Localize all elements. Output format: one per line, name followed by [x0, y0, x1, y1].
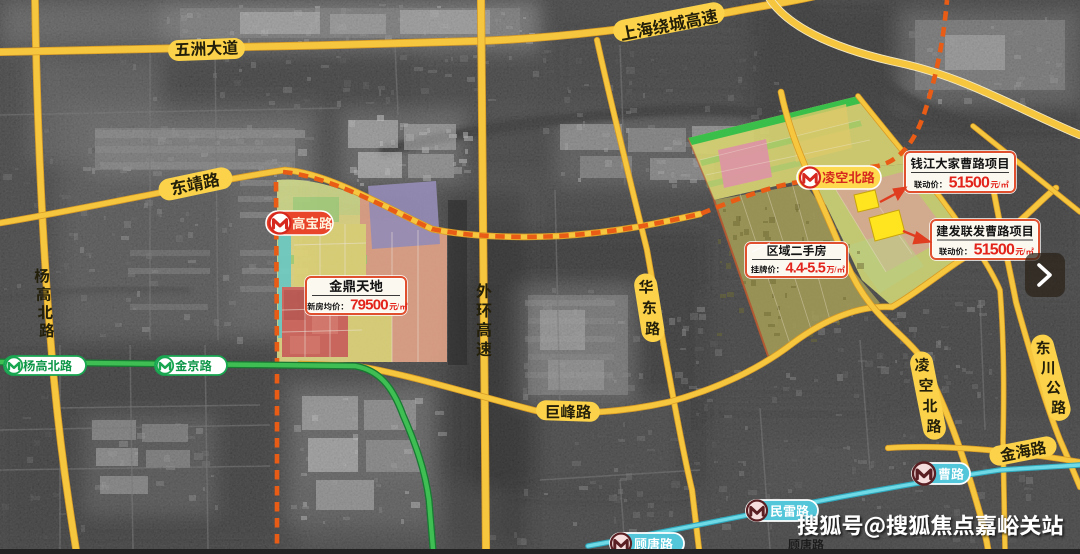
svg-text:51500: 51500	[949, 175, 990, 192]
svg-text:79500: 79500	[350, 297, 388, 314]
svg-text:4.4-5.5: 4.4-5.5	[786, 261, 826, 277]
svg-text:51500: 51500	[974, 242, 1015, 259]
